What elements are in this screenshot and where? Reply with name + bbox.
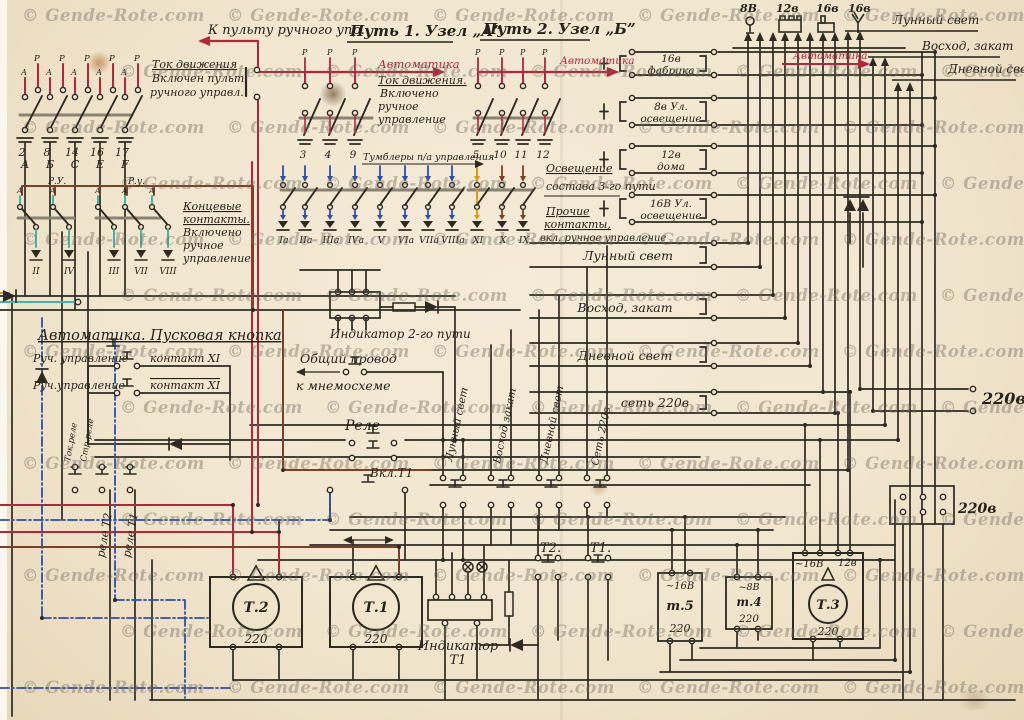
scene-block-label: Дневной свет (577, 348, 672, 363)
terminal (604, 502, 609, 507)
junction-dot (920, 73, 924, 77)
terminal (391, 440, 396, 445)
a-label: А (95, 68, 102, 77)
p-label: Р (108, 54, 115, 64)
lamp-voltage-label: 12в (776, 2, 799, 15)
terminal (281, 183, 286, 188)
junction-dot (803, 423, 807, 427)
a-label: А (148, 186, 155, 195)
terminal (520, 83, 525, 88)
terminal (629, 143, 634, 148)
wire (471, 140, 485, 144)
roman-label: VIII (159, 267, 177, 277)
terminal (112, 225, 117, 230)
lighting-note: состава 3-го пути (546, 180, 656, 193)
diode-icon (3, 290, 16, 302)
a-label: А (49, 186, 56, 195)
t2-contact-label: Т2. (540, 541, 561, 556)
terminal (940, 494, 945, 499)
arrow-down-icon (499, 215, 505, 220)
wire (92, 138, 108, 142)
ru-label-2: Р.у. (127, 177, 145, 187)
junction-dot (40, 616, 44, 620)
junction-dot (896, 438, 900, 442)
sunrise-label: Восход, закат (921, 39, 1013, 53)
house-icon (818, 16, 834, 32)
automation-box-title: Автоматика. Пусковая кнопка (37, 328, 282, 344)
toggle-roman-label: VIа (398, 235, 415, 246)
relay-block-label: 12в (661, 149, 680, 161)
note-line: контакты. (183, 213, 250, 226)
toggle-roman-label: IX (518, 235, 531, 246)
automation-label-1: Автоматика (377, 57, 460, 71)
mains-voltage-label: 220в (981, 389, 1024, 408)
terminal (450, 183, 455, 188)
diode-icon (400, 221, 410, 228)
terminal (711, 363, 716, 368)
coil-bracket (620, 102, 626, 121)
lighting-note: Освещение (546, 162, 613, 175)
junction-dot (251, 308, 255, 312)
toggle-roman-label: IIа (298, 235, 313, 246)
wire (338, 270, 366, 330)
note-line: Включено (182, 226, 242, 239)
common-wire-label: Общий провод (300, 351, 397, 366)
terminal (711, 192, 716, 197)
terminal (535, 574, 540, 579)
t5-name: т.5 (666, 599, 693, 614)
terminal (970, 408, 975, 413)
arrow-down-icon (474, 215, 480, 220)
terminal (474, 620, 479, 625)
terminal (72, 94, 77, 99)
junction-dot (461, 438, 465, 442)
junction-dot (683, 515, 687, 519)
diode-icon (425, 301, 438, 313)
terminal (488, 475, 493, 480)
diode-icon (109, 250, 119, 258)
relay-block-label: освещение (640, 113, 701, 125)
tok-rele-label: Ток.реле (63, 422, 80, 463)
wire (117, 138, 133, 142)
junction-dot (933, 193, 937, 197)
note-line: управление (377, 113, 446, 126)
junction-dot (808, 364, 812, 368)
terminal (605, 555, 610, 560)
path1-title: Путь 1. Узел „А” (349, 22, 502, 40)
terminal (134, 390, 139, 395)
terminal (555, 574, 560, 579)
scene-block-label: сеть 220в (621, 395, 689, 410)
terminal (629, 72, 634, 77)
terminal (127, 487, 132, 492)
blue-dashdot-wire (0, 318, 330, 698)
junction-dot (871, 409, 875, 413)
terminal (711, 72, 716, 77)
terminal (127, 464, 132, 469)
coil-bracket (600, 104, 608, 119)
toggle-roman-label: V (378, 235, 386, 246)
daylight-label: Дневной свет (947, 62, 1024, 76)
toggle-roman-label: Iа (278, 235, 289, 246)
arrow-down-icon (377, 215, 383, 220)
terminal (535, 555, 540, 560)
terminal (449, 594, 454, 599)
roman-label: IV (63, 267, 76, 277)
transformer-t3: ~16В 12в Т.3 220 (793, 553, 863, 639)
terminal (536, 502, 541, 507)
scene-block-label: Лунный свет (582, 248, 673, 263)
terminal (327, 83, 332, 88)
terminal (391, 455, 396, 460)
terminal (303, 183, 308, 188)
wire (101, 96, 117, 127)
arrow-down-icon (425, 215, 431, 220)
arrow-down-icon (402, 215, 408, 220)
note-line: Концевые (182, 200, 242, 213)
moonlight-label: Лунный свет (892, 13, 979, 27)
transformer-t5: ~16В т.5 220 (658, 573, 702, 641)
terminal-number: 4 (324, 149, 332, 161)
terminal (135, 87, 140, 92)
t5-voltage: 220 (669, 622, 691, 635)
arrow-down-icon (302, 215, 308, 220)
terminal (920, 494, 925, 499)
junction-dot (858, 387, 862, 391)
terminal (378, 183, 383, 188)
p-label: Р (519, 48, 526, 57)
common-wire-label: к мнемосхеме (296, 378, 391, 393)
note-line: ручное (378, 100, 419, 113)
terminal (440, 475, 445, 480)
t3-name: Т.3 (816, 598, 839, 613)
terminal (47, 94, 52, 99)
toggle-roman-label: XI (472, 235, 484, 246)
toggles-label: Тумблеры п/а управления (363, 152, 494, 163)
vertical-wire-label: Восход закат (491, 387, 519, 465)
terminal (97, 94, 102, 99)
t4-name: т.4 (736, 595, 761, 609)
relay-label: Реле (344, 418, 380, 434)
wire (126, 96, 142, 127)
terminal (254, 94, 259, 99)
contact-xi-label: контакт XI (150, 379, 221, 392)
terminal (629, 49, 634, 54)
terminal (465, 594, 470, 599)
terminal-letter: Е (95, 158, 104, 171)
p-label: Р (133, 54, 140, 64)
toggle-roman-label: IIIа (322, 235, 340, 246)
schematic-canvas: АР2ААР8БАР14САР16ЕАР17FАIIАIVАIIIАVIIАVI… (0, 0, 1024, 720)
scanned-schematic-page: АР2ААР8БАР14САР16ЕАР17FАIIАIVАIIIАVIIАVI… (0, 0, 1024, 720)
a-label: А (45, 68, 52, 77)
arrow-down-icon (327, 176, 333, 182)
tree-icon (852, 12, 864, 33)
terminal (499, 83, 504, 88)
note-line: Включено (379, 87, 439, 100)
headers: К пульту ручного упр. Путь 1. Узел „А” П… (200, 20, 868, 71)
terminal (605, 574, 610, 579)
junction-dot (670, 528, 674, 532)
note-line: Ток движения (152, 58, 237, 71)
scene-block-labels: Лунный свет Восход, закат Дневной свет с… (576, 248, 689, 410)
relay-block-label: дома (657, 161, 685, 173)
relay-block-labels: 16в фабрика 8в Ул. освещение 12в дома 16… (640, 53, 701, 222)
diode-icon (857, 199, 869, 211)
arrow-down-icon (327, 215, 333, 220)
diode-icon (325, 221, 335, 228)
arrow-down-icon (280, 215, 286, 220)
transformer-t2: Т.2 220 (210, 566, 302, 647)
wire (850, 213, 863, 267)
terminal (403, 183, 408, 188)
transformer-t1: Т.1 220 (330, 566, 422, 647)
roman-label: VII (134, 267, 148, 277)
arrow-down-icon (352, 215, 358, 220)
note-line: управление (182, 252, 251, 265)
p-label: Р (326, 48, 333, 57)
junction-dot (878, 558, 882, 562)
wire (538, 140, 552, 144)
note-line: Ток движения. (378, 74, 467, 87)
terminal (349, 440, 354, 445)
coil-bracket (700, 150, 706, 169)
a-label: А (70, 68, 77, 77)
terminal (711, 340, 716, 345)
junction-dot (536, 515, 540, 519)
diode-icon (510, 639, 523, 651)
wire (348, 140, 362, 144)
junction-dot (920, 171, 924, 175)
coil-bracket (700, 56, 706, 71)
note-line: ручное (183, 239, 224, 252)
terminal (433, 594, 438, 599)
junction-dot (746, 241, 750, 245)
t5-vin: ~16В (666, 581, 694, 592)
terminal (97, 127, 102, 132)
junction-dot (920, 220, 924, 224)
diode-icon (472, 221, 482, 228)
terminal (508, 475, 513, 480)
top-left-notes: Ток движения Включен пульт ручного управ… (150, 58, 244, 99)
transformer-t4: ~8В т.4 220 (726, 577, 772, 629)
contact-symbol (594, 480, 606, 487)
wire (51, 96, 67, 127)
junction-dot (846, 468, 850, 472)
junction-dot (735, 543, 739, 547)
terminal (85, 87, 90, 92)
toggle-roman-label: VIIа (419, 235, 439, 246)
terminal (67, 225, 72, 230)
p-label: Р (83, 54, 90, 64)
junction-dot (883, 423, 887, 427)
p-label: Р (351, 48, 358, 57)
terminal (629, 122, 634, 127)
terminal (166, 225, 171, 230)
str-rele-label: Стр.реле (79, 418, 96, 463)
wire (26, 96, 42, 127)
terminal (711, 264, 716, 269)
p-label: Р (474, 48, 481, 57)
junction-dot (281, 468, 285, 472)
terminal (900, 509, 905, 514)
terminal (349, 455, 354, 460)
terminal (711, 315, 716, 320)
coil-bracket (700, 347, 706, 362)
terminal (629, 219, 634, 224)
terminal (302, 83, 307, 88)
terminal (75, 299, 80, 304)
junction-dot (461, 558, 465, 562)
contact-symbol (542, 555, 554, 562)
diode-icon (518, 221, 528, 228)
terminal (629, 192, 634, 197)
rele-t2-label: реле Т2 (94, 512, 115, 558)
lamp-voltage-label: 16в (848, 2, 871, 15)
factory-building-icon (779, 16, 801, 32)
t1-contact-label: Т1. (590, 541, 611, 556)
diode-icon (497, 221, 507, 228)
terminal (604, 475, 609, 480)
toggle-roman-label: VIIIа (441, 235, 465, 246)
wire (323, 140, 337, 144)
note-line: Включен пульт (151, 72, 244, 85)
terminal (488, 502, 493, 507)
coil-bracket (700, 396, 706, 409)
junction-dot (328, 518, 332, 522)
arrow-down-icon (280, 176, 286, 182)
terminal (361, 369, 366, 374)
junction-dot (397, 545, 401, 549)
p-label: Р (58, 54, 65, 64)
relay-block-label: освещение (640, 210, 701, 222)
manual-control-label: Руч.управление (32, 379, 125, 392)
junction-dot (908, 670, 912, 674)
t3-vin1: ~16В (795, 559, 823, 570)
wire (298, 140, 312, 144)
terminal (970, 386, 975, 391)
terminal (584, 502, 589, 507)
terminal (60, 87, 65, 92)
junction-dot (441, 438, 445, 442)
terminal (711, 389, 716, 394)
contact-symbol (545, 480, 557, 487)
arrow-down-icon (449, 215, 455, 220)
diode-icon (136, 250, 146, 258)
diode-icon (31, 250, 41, 258)
junction-dot (933, 96, 937, 100)
automation-label-2: Автоматика (559, 55, 635, 67)
contact-symbol (592, 555, 604, 562)
junction-dot (796, 341, 800, 345)
a-label: А (120, 68, 127, 77)
indicator-t1-label: Т1 (450, 653, 467, 668)
terminal (711, 240, 716, 245)
t2-voltage: 220 (244, 632, 268, 646)
terminal-letter: С (71, 158, 80, 171)
diode-icon (447, 221, 457, 228)
roman-label: II (31, 267, 40, 277)
terminal (521, 183, 526, 188)
terminal (585, 555, 590, 560)
relay-block-label: 8в Ул. (654, 101, 688, 113)
manual-control-label: Руч. управление (32, 352, 129, 365)
a-label: А (20, 68, 27, 77)
path2-title: Путь 2. Узел „Б” (482, 20, 636, 38)
junction-dot (441, 558, 445, 562)
contact-xi-label: контакт XI (150, 352, 221, 365)
terminal (134, 363, 139, 368)
terminal (475, 183, 480, 188)
junction-dot (277, 530, 281, 534)
terminal (353, 183, 358, 188)
junction-dot (231, 503, 235, 507)
ru-label-1: Р.У. (47, 177, 66, 187)
diode-icon (300, 221, 310, 228)
junction-dot (756, 528, 760, 532)
terminal (122, 94, 127, 99)
terminal (555, 555, 560, 560)
coil-bracket (600, 201, 608, 216)
terminal (343, 369, 348, 374)
arrow-down-icon (377, 176, 383, 182)
junction-dot (250, 530, 254, 534)
terminal (327, 487, 332, 492)
coil-bracket (620, 150, 626, 169)
rele-t1-label: реле Т1 (120, 512, 141, 558)
diode-icon (278, 221, 288, 228)
terminal-number: 10 (493, 149, 507, 161)
junction-dot (920, 123, 924, 127)
coil-bracket (620, 199, 626, 218)
terminal (711, 122, 716, 127)
terminal (508, 502, 513, 507)
terminal-number: 12 (536, 149, 550, 161)
note-line: ручного управл. (150, 86, 244, 99)
junction-dot (848, 390, 852, 394)
p-label: Р (541, 48, 548, 57)
terminal (22, 94, 27, 99)
t4-voltage: 220 (738, 613, 759, 625)
terminal (584, 475, 589, 480)
terminal (500, 183, 505, 188)
a-label: А (16, 186, 23, 195)
terminal (629, 95, 634, 100)
vkl-t1-label: Вкл.Т1 (369, 466, 413, 480)
wire (76, 96, 92, 127)
junction-dot (771, 293, 775, 297)
indicator-t1-label: Индикатор (417, 639, 499, 654)
terminal (460, 475, 465, 480)
junction-dot (113, 598, 117, 602)
terminal-letter: Б (45, 158, 54, 171)
arrow-down-icon (425, 176, 431, 182)
terminal (122, 127, 127, 132)
terminal (99, 487, 104, 492)
mains-voltage-label-2: 220в (957, 501, 996, 517)
relay-block-label: фабрика (648, 65, 695, 77)
terminal (556, 502, 561, 507)
t4-vin: ~8В (739, 582, 760, 593)
diode-icon (163, 250, 173, 258)
t3-voltage: 220 (817, 625, 839, 638)
terminal (711, 292, 716, 297)
automation-label-3: Автоматика (792, 50, 868, 62)
roman-label: III (108, 267, 120, 277)
diode-icon (844, 199, 856, 211)
terminal (22, 127, 27, 132)
wire (67, 138, 83, 142)
